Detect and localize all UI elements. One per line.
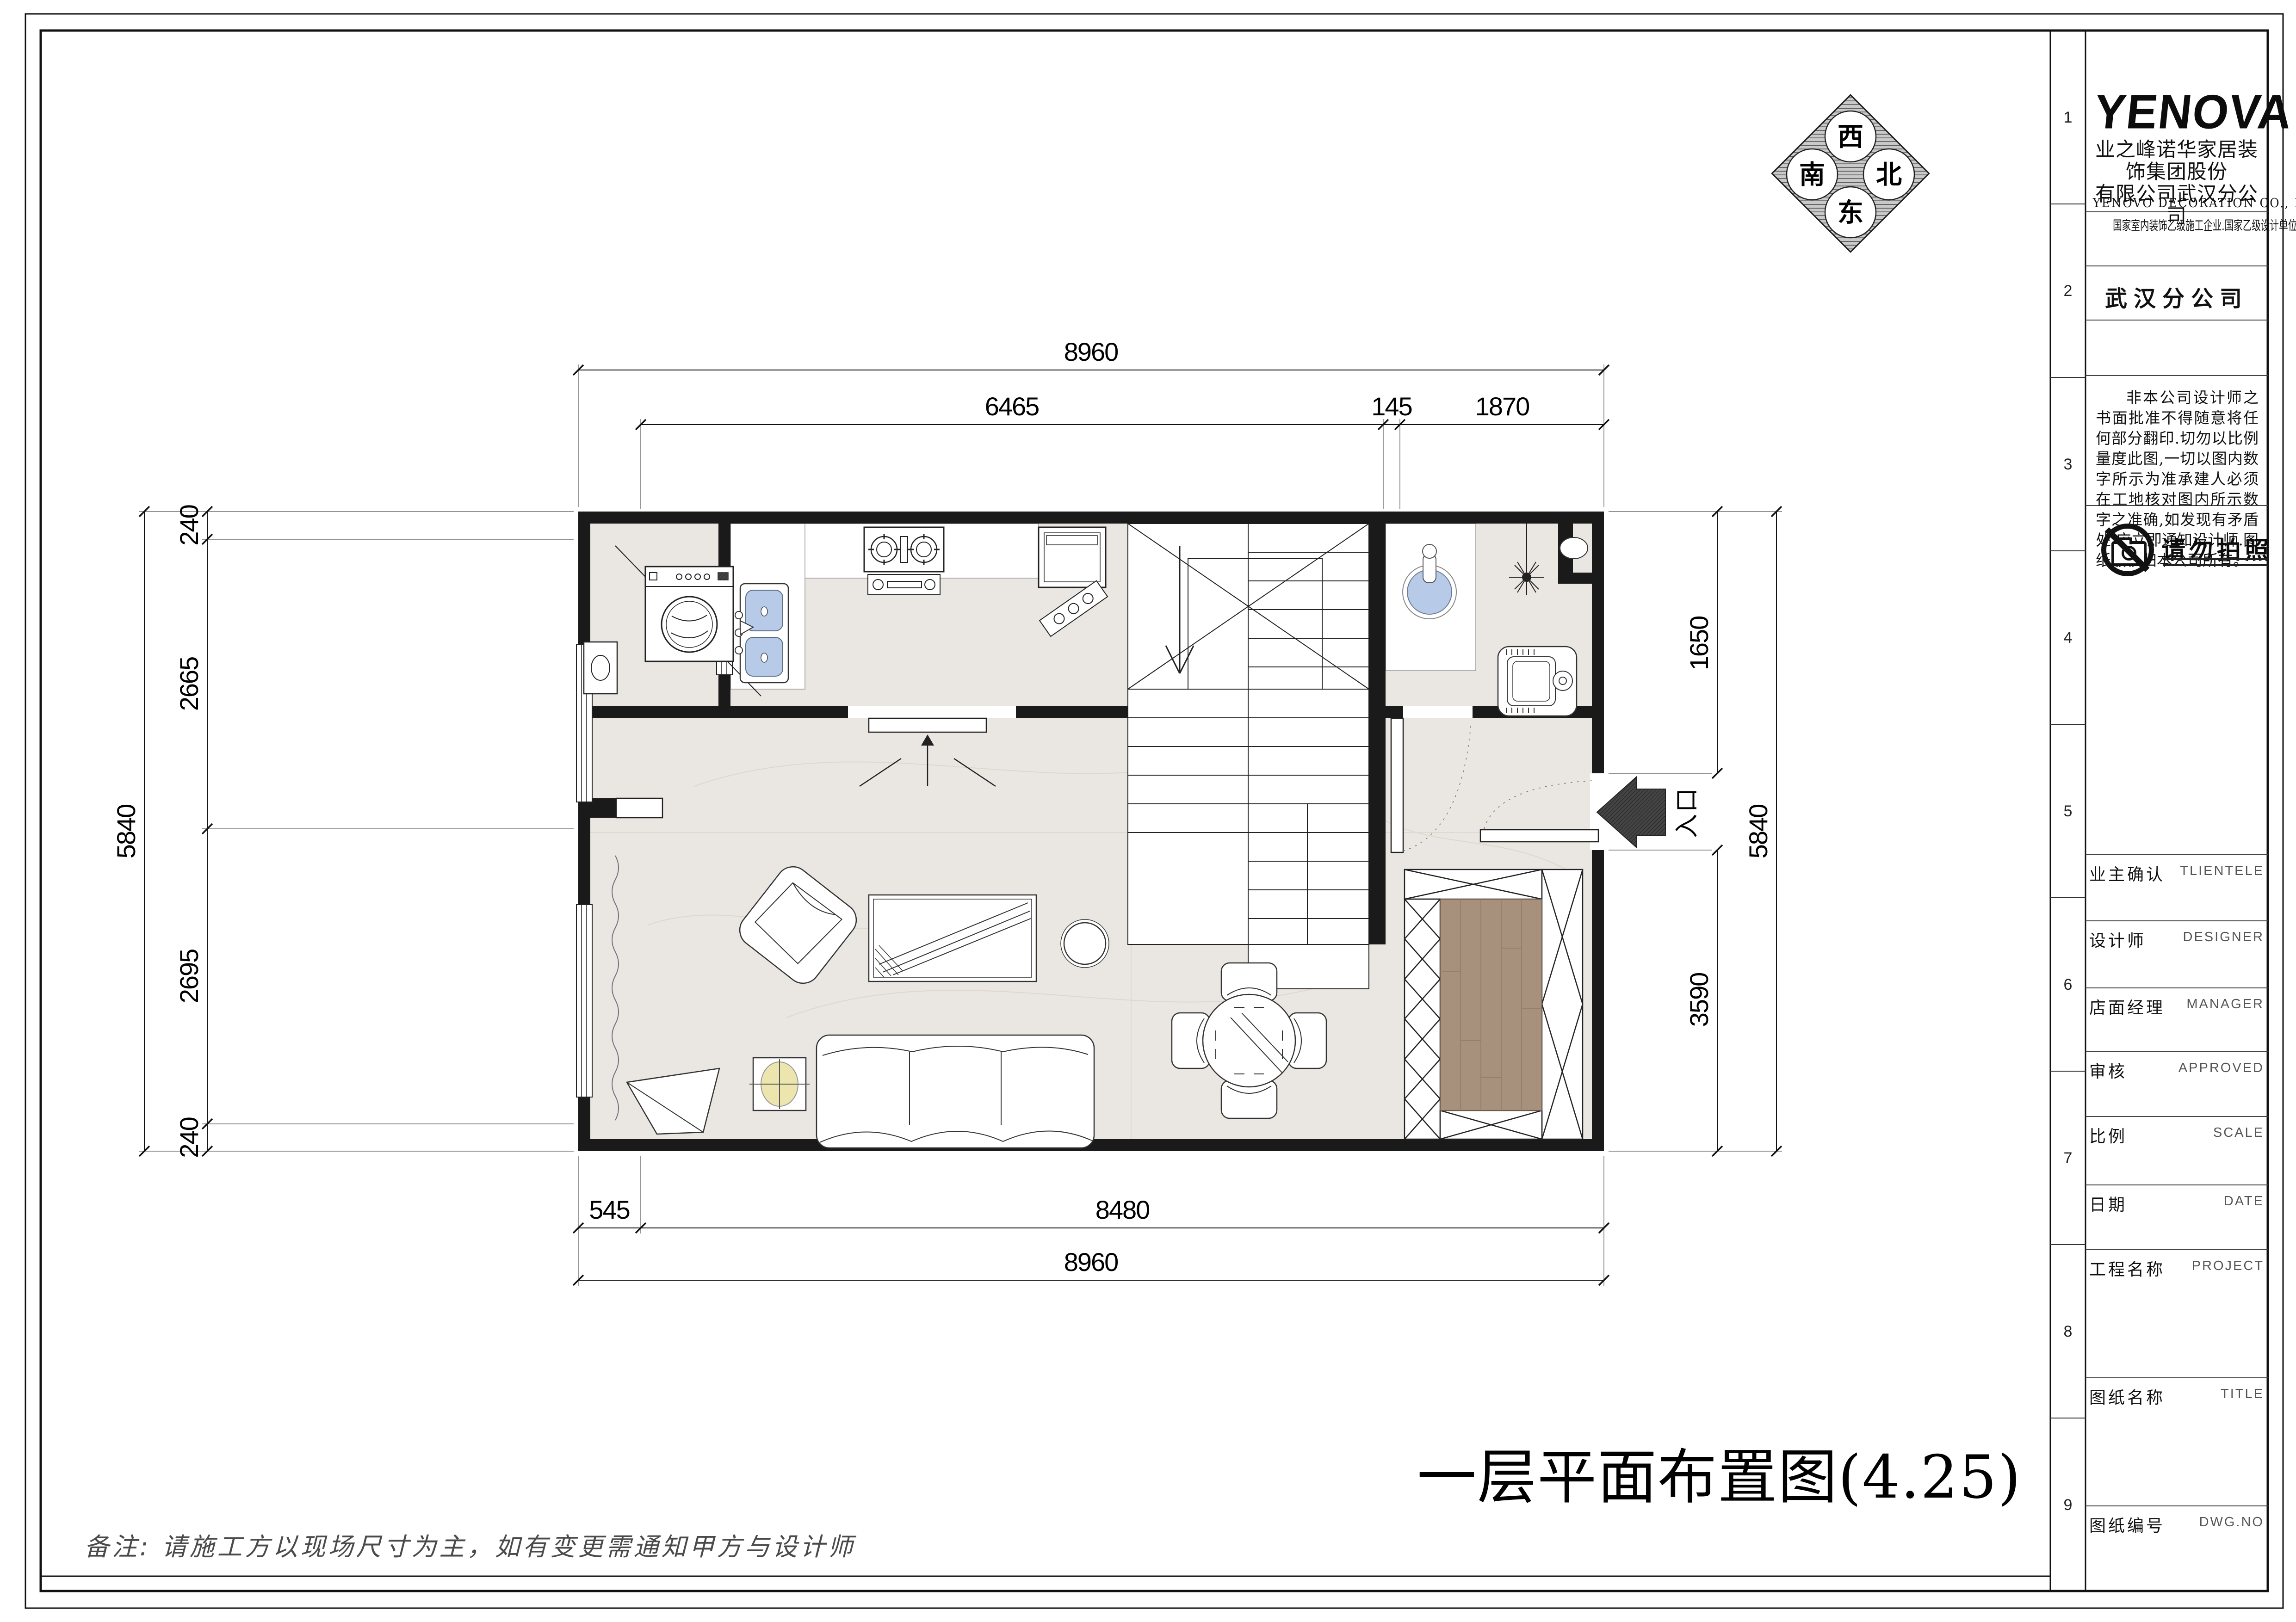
dim-left-overall: 5840	[111, 805, 141, 859]
company-qualification: 国家室内装饰乙级施工企业.国家乙级设计单位	[2113, 216, 2240, 234]
drawing-svg: 1 2 3 4 5 6 7 8 9 西 南 北 东	[0, 0, 2296, 1622]
field-row-approved: 审核 APPROVED	[2089, 1058, 2264, 1082]
no-photo-icon	[2101, 524, 2153, 575]
field-label-cn: 业主确认	[2089, 861, 2165, 885]
plant-table-icon	[749, 1058, 810, 1110]
field-row-title: 图纸名称 TITLE	[2089, 1384, 2264, 1408]
dim-right-seg-2: 3590	[1684, 973, 1714, 1027]
dim-bottom-overall: 8960	[1064, 1247, 1118, 1277]
wall-ledge	[616, 798, 662, 818]
washing-machine-icon	[645, 567, 733, 661]
drawing-title: 一层平面布置图(4.25)	[1365, 1429, 2022, 1515]
compass-icon: 西 南 北 东	[1772, 95, 1929, 252]
field-label-cn: 图纸编号	[2089, 1512, 2165, 1536]
dim-top-seg-3: 1870	[1475, 392, 1529, 421]
company-name-cn-line1: 业之峰诺华家居装饰集团股份	[2086, 139, 2268, 183]
company-name-cn: 业之峰诺华家居装饰集团股份 有限公司武汉分公司	[2086, 139, 2268, 228]
field-row-scale: 比例 SCALE	[2089, 1123, 2264, 1147]
field-label-en: TLIENTELE	[2180, 861, 2264, 879]
dining-table-icon	[1203, 994, 1295, 1087]
field-label-cn: 图纸名称	[2089, 1384, 2165, 1408]
dim-bottom-seg-1: 545	[589, 1195, 629, 1224]
field-label-en: DATE	[2224, 1191, 2264, 1209]
dim-right-seg-1: 1650	[1684, 617, 1714, 671]
compass-east: 东	[1838, 197, 1863, 228]
compass-west: 西	[1838, 122, 1863, 152]
field-row-dwgno: 图纸编号 DWG.NO	[2089, 1512, 2264, 1536]
compass-north: 北	[1876, 160, 1902, 190]
field-row-manager: 店面经理 MANAGER	[2089, 994, 2264, 1018]
no-photo-label: 请勿拍照	[2161, 531, 2272, 566]
dim-top-seg-2: 145	[1371, 392, 1411, 421]
dim-left-seg-2: 2665	[174, 657, 204, 711]
entrance-arrow-icon: 入口	[1597, 777, 1701, 847]
field-label-en: APPROVED	[2178, 1058, 2264, 1076]
svg-text:2: 2	[2064, 282, 2073, 300]
field-label-en: MANAGER	[2186, 994, 2264, 1012]
field-row-client: 业主确认 TLIENTELE	[2089, 861, 2264, 885]
field-label-cn: 店面经理	[2089, 994, 2165, 1018]
field-label-en: SCALE	[2213, 1123, 2264, 1141]
kitchen-sink-icon	[735, 584, 788, 683]
dim-top-seg-1: 6465	[985, 392, 1039, 421]
compass-south: 南	[1799, 160, 1825, 190]
entrance-label: 入口	[1673, 786, 1701, 838]
field-label-en: DWG.NO	[2199, 1512, 2264, 1530]
field-label-en: TITLE	[2221, 1384, 2264, 1402]
revision-strip-numbers: 1 2 3 4 5 6 7 8 9	[2064, 109, 2073, 1514]
sofa-icon	[817, 1035, 1094, 1148]
field-row-date: 日期 DATE	[2089, 1191, 2264, 1215]
field-label-cn: 审核	[2089, 1058, 2127, 1082]
no-photo-underline-2	[2163, 564, 2268, 566]
bath-door-leaf	[1391, 718, 1403, 852]
dim-right-overall: 5840	[1744, 805, 1773, 859]
dim-top-overall: 8960	[1064, 337, 1118, 366]
field-label-cn: 日期	[2089, 1191, 2127, 1215]
svg-text:7: 7	[2064, 1149, 2073, 1167]
svg-text:8: 8	[2064, 1323, 2073, 1340]
field-label-cn: 工程名称	[2089, 1256, 2165, 1280]
entry-door-leaf	[1480, 830, 1598, 842]
dim-left-seg-4: 240	[174, 1117, 204, 1158]
gas-stove-icon	[864, 527, 944, 595]
svg-text:9: 9	[2064, 1496, 2073, 1514]
svg-text:5: 5	[2064, 802, 2073, 820]
dim-left-seg-3: 2695	[174, 950, 204, 1004]
field-label-en: DESIGNER	[2183, 927, 2264, 945]
svg-text:3: 3	[2064, 456, 2073, 473]
dim-bottom-seg-2: 8480	[1095, 1195, 1150, 1224]
floor-plan: 入口	[576, 512, 1701, 1151]
field-label-en: PROJECT	[2192, 1256, 2264, 1274]
field-label-cn: 设计师	[2089, 927, 2146, 951]
company-name-en: YENOVO DECORATION CO., LTD	[2093, 196, 2260, 210]
branch-name: 武汉分公司	[2086, 280, 2268, 313]
field-row-project: 工程名称 PROJECT	[2089, 1256, 2264, 1280]
bath-door-opening	[1403, 706, 1473, 718]
svg-text:6: 6	[2064, 976, 2073, 993]
svg-text:1: 1	[2064, 109, 2073, 126]
staircase	[1128, 524, 1369, 989]
squat-toilet-icon	[1498, 647, 1577, 716]
cad-sheet: 1 2 3 4 5 6 7 8 9 西 南 北 东	[0, 0, 2296, 1622]
remark-note: 备注: 请施工方以现场尺寸为主，如有变更需通知甲方与设计师	[84, 1526, 1287, 1563]
mirror-icon	[1560, 537, 1588, 559]
floor-drain-icon	[584, 642, 617, 694]
wood-floor	[1440, 899, 1542, 1110]
company-logo: YENOVA	[2092, 85, 2265, 140]
tv-cabinet-icon	[869, 895, 1036, 981]
kitchen-door-opening	[848, 706, 1016, 718]
svg-text:4: 4	[2064, 629, 2073, 647]
field-label-cn: 比例	[2089, 1123, 2127, 1147]
field-row-designer: 设计师 DESIGNER	[2089, 927, 2264, 951]
no-photo-underline-1	[2163, 558, 2268, 560]
dim-left-seg-1: 240	[174, 505, 204, 545]
